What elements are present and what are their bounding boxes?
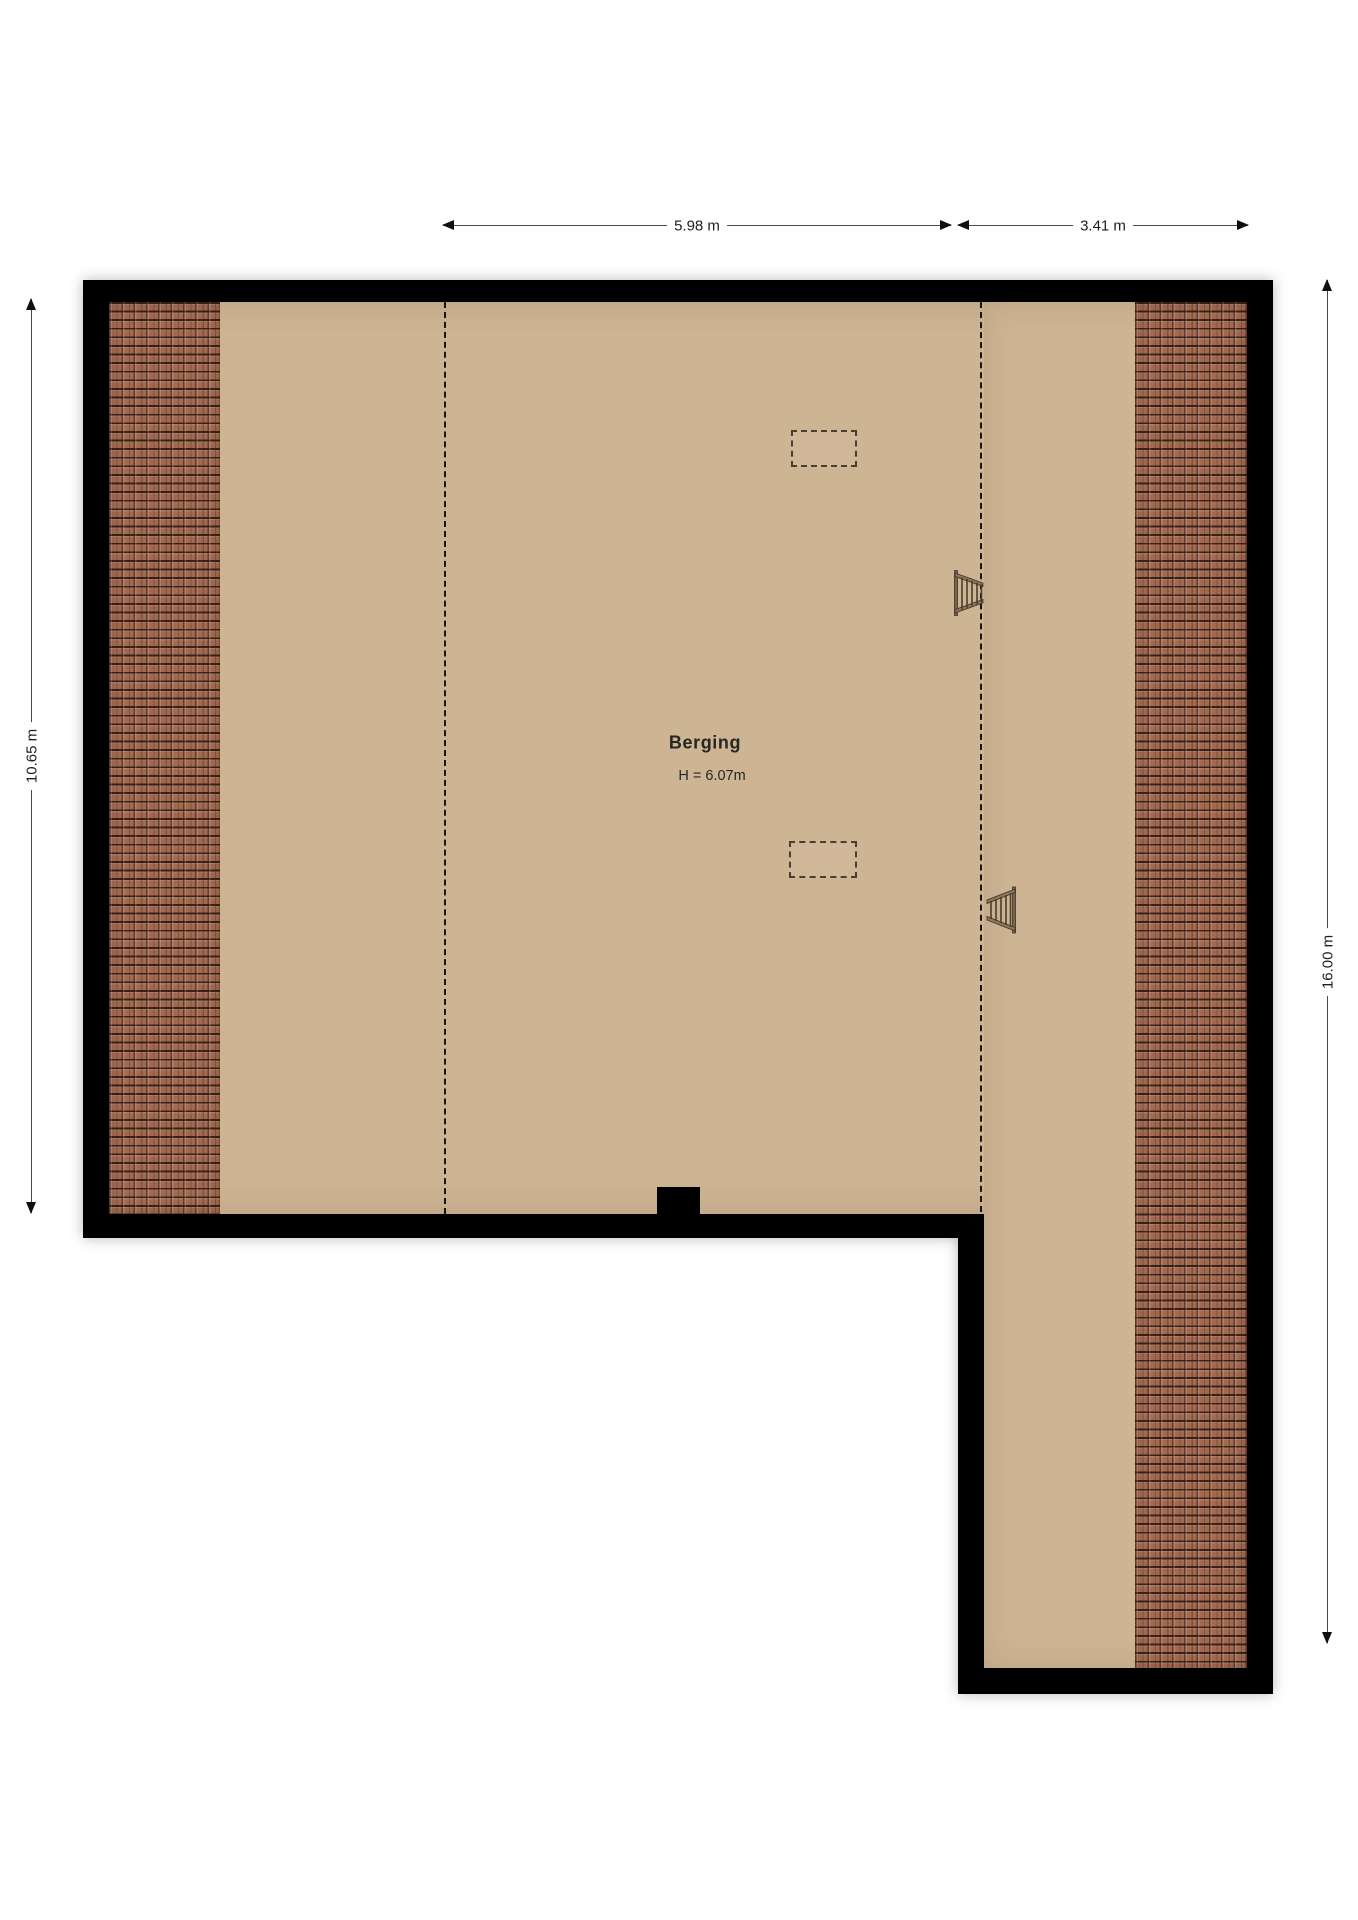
arrow-down-icon bbox=[26, 1202, 36, 1214]
floor-plan-page: Berging H = 6.07m 5.98 m 3.41 m 10.65 m … bbox=[0, 0, 1358, 1920]
arrow-right-icon bbox=[940, 220, 952, 230]
room-height-label: H = 6.07m bbox=[678, 768, 745, 784]
roof-tiles-right-strip bbox=[1135, 302, 1247, 1668]
wall-stub bbox=[657, 1187, 700, 1214]
dimension-label: 10.65 m bbox=[23, 722, 40, 790]
arrow-up-icon bbox=[1322, 279, 1332, 291]
dimension-label: 5.98 m bbox=[667, 217, 727, 234]
dimension-label: 3.41 m bbox=[1073, 217, 1133, 234]
ladder-icon bbox=[985, 885, 1016, 935]
arrow-right-icon bbox=[1237, 220, 1249, 230]
room-name-label: Berging bbox=[669, 733, 741, 754]
dimension-line-left: 10.65 m bbox=[31, 299, 32, 1213]
dimension-line-top-wing: 3.41 m bbox=[958, 225, 1248, 226]
arrow-down-icon bbox=[1322, 1632, 1332, 1644]
roof-break-line-left bbox=[444, 302, 446, 1214]
arrow-up-icon bbox=[26, 298, 36, 310]
dimension-line-top-main: 5.98 m bbox=[443, 225, 951, 226]
roof-tiles-left-strip bbox=[109, 302, 220, 1214]
dimension-label: 16.00 m bbox=[1319, 927, 1336, 995]
dimension-line-right: 16.00 m bbox=[1327, 280, 1328, 1643]
roof-break-line-right bbox=[980, 302, 982, 1212]
ladder-icon bbox=[954, 569, 984, 617]
skylight-window-icon bbox=[791, 430, 857, 467]
arrow-left-icon bbox=[957, 220, 969, 230]
arrow-left-icon bbox=[442, 220, 454, 230]
skylight-window-icon bbox=[789, 841, 857, 878]
